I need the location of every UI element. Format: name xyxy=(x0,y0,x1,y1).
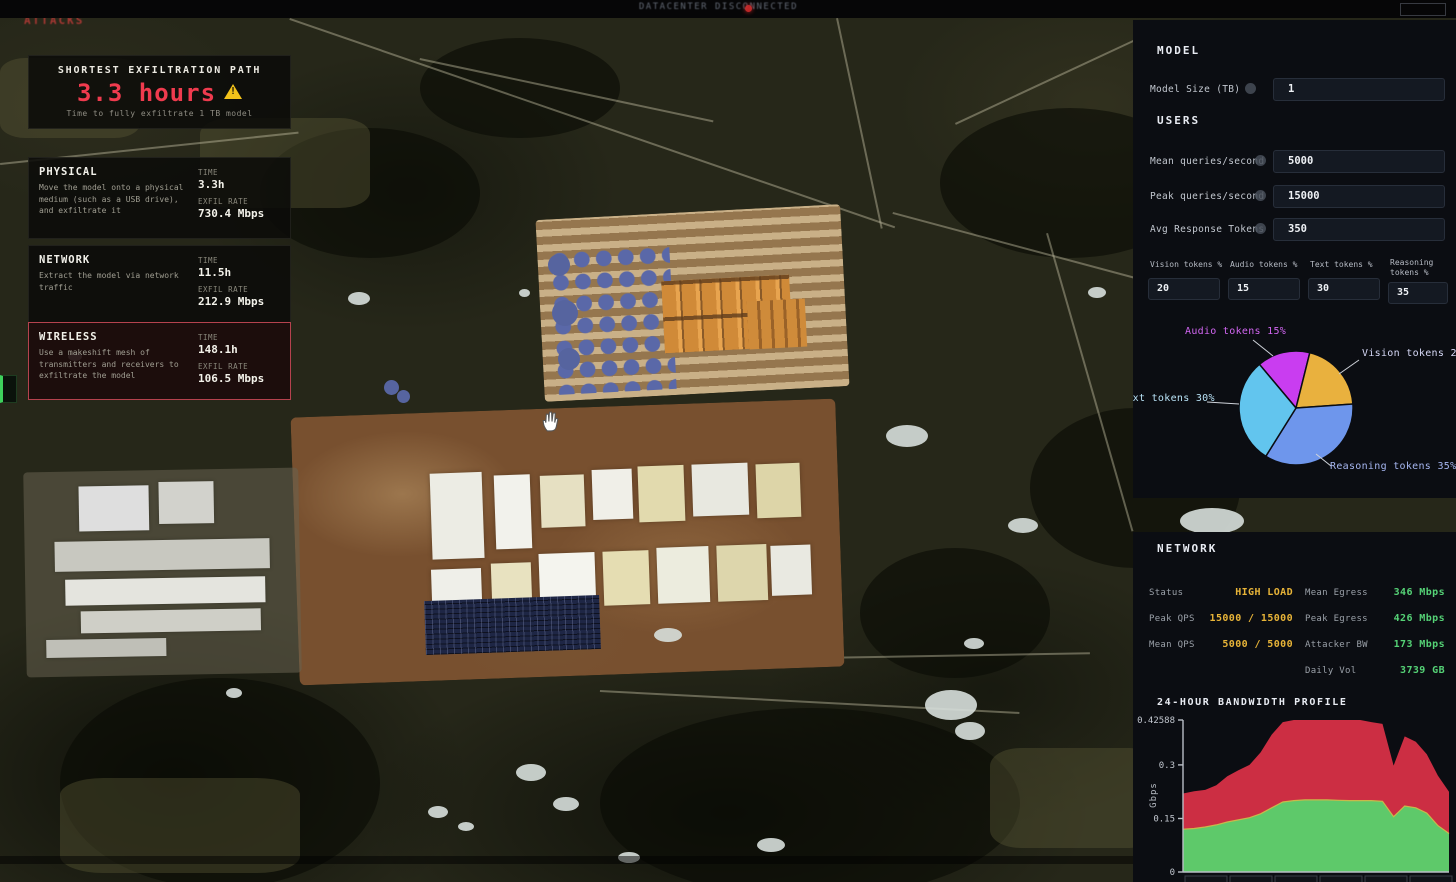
datacenter-campus-west xyxy=(23,468,302,678)
exfil-rate-value: 730.4 Mbps xyxy=(198,207,280,220)
building xyxy=(430,472,485,560)
time-label: TIME xyxy=(198,256,280,265)
svg-text:0.15: 0.15 xyxy=(1153,815,1175,825)
time-value: 11.5h xyxy=(198,266,280,279)
pie-label-vision: Vision tokens 20% xyxy=(1362,348,1456,359)
attacker-bw-label: Attacker BW xyxy=(1305,640,1368,650)
vision-tokens-label: Vision tokens % xyxy=(1150,260,1224,270)
orange-roof-sections xyxy=(747,299,807,350)
attacker-bw-value: 173 Mbps xyxy=(1373,639,1445,650)
pond xyxy=(458,822,474,831)
attack-card-wireless-selected[interactable]: WIRELESS Use a makeshift mesh of transmi… xyxy=(28,322,291,400)
shortest-path-title: SHORTEST EXFILTRATION PATH xyxy=(29,65,290,76)
peak-egress-label: Peak Egress xyxy=(1305,614,1368,624)
tank xyxy=(548,254,570,276)
building xyxy=(602,550,650,606)
building xyxy=(78,485,149,531)
network-section-header: NETWORK xyxy=(1157,542,1217,555)
info-icon[interactable] xyxy=(1255,155,1266,166)
mean-qps-input[interactable]: 5000 xyxy=(1273,150,1445,173)
attack-description: Move the model onto a physical medium (s… xyxy=(39,182,190,217)
tank xyxy=(558,348,580,370)
pie-label-reasoning: Reasoning tokens 35% xyxy=(1330,461,1456,472)
daily-vol-value: 3739 GB xyxy=(1373,665,1445,676)
attack-name: WIRELESS xyxy=(39,331,190,343)
warning-icon xyxy=(224,84,242,99)
building xyxy=(65,576,265,605)
pond xyxy=(955,722,985,740)
pond xyxy=(226,688,242,698)
peak-egress-value: 426 Mbps xyxy=(1373,613,1445,624)
building xyxy=(770,544,812,595)
attack-name: NETWORK xyxy=(39,254,190,266)
text-tokens-input[interactable]: 30 xyxy=(1308,278,1380,300)
svg-text:0: 0 xyxy=(1170,868,1175,878)
time-value: 148.1h xyxy=(198,343,280,356)
model-section-header: MODEL xyxy=(1157,44,1200,57)
info-icon[interactable] xyxy=(1255,223,1266,234)
road xyxy=(836,18,883,229)
pie-label-text: Text tokens 30% xyxy=(1133,393,1215,404)
network-panel: NETWORK Status HIGH LOAD Peak QPS 15000 … xyxy=(1133,532,1456,882)
model-size-label: Model Size (TB) xyxy=(1150,84,1240,95)
peak-qps-stat-value: 15000 / 15000 xyxy=(1193,613,1293,624)
model-users-panel: MODEL Model Size (TB) 1 USERS Mean queri… xyxy=(1133,20,1456,498)
info-icon[interactable] xyxy=(1255,190,1266,201)
exfiltration-time: 3.3 hours xyxy=(77,79,216,107)
attack-description: Use a makeshift mesh of transmitters and… xyxy=(39,347,190,382)
svg-text:0.42588: 0.42588 xyxy=(1137,716,1175,726)
recording-dot-icon xyxy=(745,5,752,12)
building xyxy=(637,465,685,523)
model-size-input[interactable]: 1 xyxy=(1273,78,1445,101)
exfil-rate-label: EXFIL RATE xyxy=(198,362,280,371)
pond xyxy=(1088,287,1106,298)
mean-qps-stat-label: Mean QPS xyxy=(1149,640,1195,650)
pond xyxy=(1180,508,1244,534)
info-icon[interactable] xyxy=(1245,83,1256,94)
status-label: Status xyxy=(1149,588,1183,598)
vision-tokens-input[interactable]: 20 xyxy=(1148,278,1220,300)
users-section-header: USERS xyxy=(1157,114,1200,127)
exfil-rate-value: 106.5 Mbps xyxy=(198,372,280,385)
building xyxy=(691,463,749,517)
reasoning-tokens-label: Reasoning tokens % xyxy=(1390,258,1450,279)
pie-label-audio: Audio tokens 15% xyxy=(1185,326,1286,337)
building xyxy=(494,474,533,549)
peak-qps-stat-label: Peak QPS xyxy=(1149,614,1195,624)
building xyxy=(592,469,634,520)
time-label: TIME xyxy=(198,168,280,177)
mean-egress-label: Mean Egress xyxy=(1305,588,1368,598)
mean-qps-label: Mean queries/second xyxy=(1150,156,1264,167)
bandwidth-area-chart: 00.150.30.42588 xyxy=(1137,712,1453,882)
pond xyxy=(654,628,682,642)
pond xyxy=(925,690,977,720)
pond xyxy=(348,292,370,305)
pond xyxy=(886,425,928,447)
map-edge-badge[interactable] xyxy=(0,375,17,403)
pond xyxy=(516,764,546,781)
peak-qps-label: Peak queries/second xyxy=(1150,191,1264,202)
time-label: TIME xyxy=(198,333,280,342)
text-tokens-label: Text tokens % xyxy=(1310,260,1384,270)
attack-description: Extract the model via network traffic xyxy=(39,270,190,293)
screen-edge-shade xyxy=(0,856,1135,864)
attack-card-physical[interactable]: PHYSICAL Move the model onto a physical … xyxy=(28,157,291,239)
pond xyxy=(964,638,984,649)
bandwidth-chart-title: 24-HOUR BANDWIDTH PROFILE xyxy=(1157,697,1348,708)
mean-egress-value: 346 Mbps xyxy=(1373,587,1445,598)
shortest-path-subtitle: Time to fully exfiltrate 1 TB model xyxy=(29,109,290,118)
exfil-rate-label: EXFIL RATE xyxy=(198,285,280,294)
avg-response-tokens-label: Avg Response Tokens xyxy=(1150,224,1264,235)
mean-qps-stat-value: 5000 / 5000 xyxy=(1193,639,1293,650)
daily-vol-label: Daily Vol xyxy=(1305,666,1356,676)
pond xyxy=(757,838,785,852)
exfiltration-dashboard: DATACENTER DISCONNECTED xyxy=(0,0,1456,882)
window-controls[interactable] xyxy=(1400,3,1446,16)
window-title-bar: DATACENTER DISCONNECTED xyxy=(0,0,1456,18)
shortest-path-card: SHORTEST EXFILTRATION PATH 3.3 hours Tim… xyxy=(28,55,291,129)
building xyxy=(46,638,166,658)
building xyxy=(54,538,269,572)
grab-cursor-icon xyxy=(540,410,560,436)
audio-tokens-input[interactable]: 15 xyxy=(1228,278,1300,300)
pond xyxy=(1008,518,1038,533)
exfil-rate-label: EXFIL RATE xyxy=(198,197,280,206)
pond xyxy=(519,289,530,297)
solar-array xyxy=(424,595,601,655)
building xyxy=(755,463,801,519)
reasoning-tokens-input[interactable]: 35 xyxy=(1388,282,1448,304)
attack-card-network[interactable]: NETWORK Extract the model via network tr… xyxy=(28,245,291,323)
pond xyxy=(428,806,448,818)
building xyxy=(716,544,768,602)
exfil-rate-value: 212.9 Mbps xyxy=(198,295,280,308)
building xyxy=(158,481,214,524)
audio-tokens-label: Audio tokens % xyxy=(1230,260,1304,270)
status-value: HIGH LOAD xyxy=(1193,587,1293,598)
time-value: 3.3h xyxy=(198,178,280,191)
svg-text:0.3: 0.3 xyxy=(1159,761,1175,771)
tank xyxy=(552,300,578,326)
forest-patch xyxy=(860,548,1050,678)
building xyxy=(656,546,710,604)
building xyxy=(81,608,261,633)
building xyxy=(540,474,586,528)
attack-name: PHYSICAL xyxy=(39,166,190,178)
pond xyxy=(553,797,579,811)
window-title: DATACENTER DISCONNECTED xyxy=(639,2,798,12)
peak-qps-input[interactable]: 15000 xyxy=(1273,185,1445,208)
tank xyxy=(397,390,410,403)
avg-response-tokens-input[interactable]: 350 xyxy=(1273,218,1445,241)
